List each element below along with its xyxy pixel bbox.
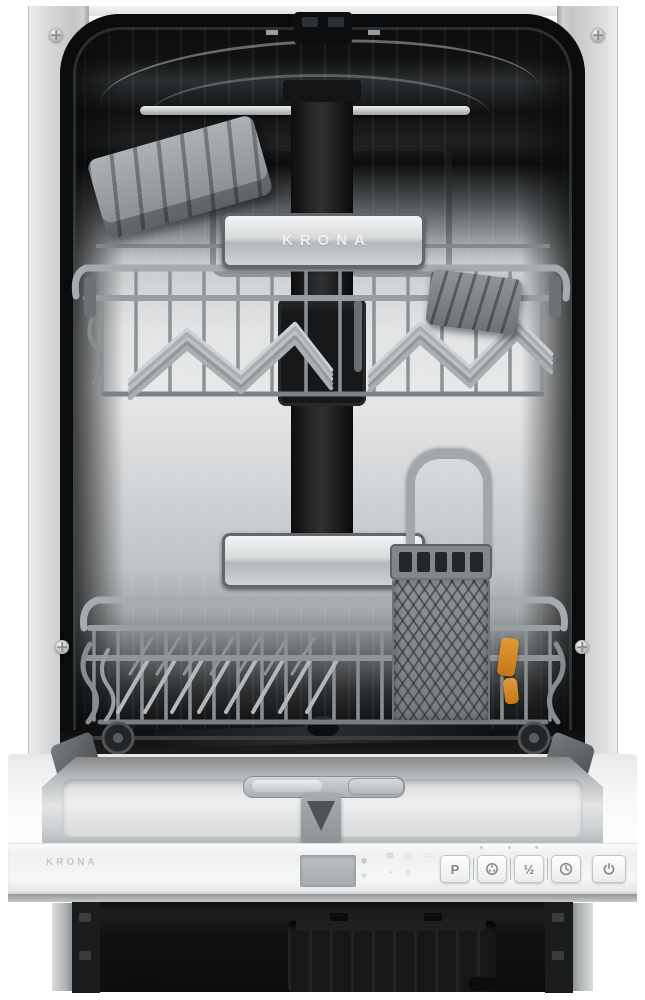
delay-start-button[interactable] bbox=[551, 855, 581, 883]
bracket-notch bbox=[552, 913, 564, 922]
program-button[interactable]: P bbox=[440, 855, 470, 883]
dispenser-latch bbox=[348, 778, 404, 795]
program-led bbox=[535, 846, 538, 849]
rinse-refill-icon: ✳ bbox=[358, 871, 370, 882]
control-panel: KRONA ✱ ✳ ⊠ ▭ ∷ ◔ ▿ P bbox=[8, 843, 637, 894]
salt-funnel bbox=[301, 793, 341, 845]
brand-logo: KRONA bbox=[275, 232, 372, 249]
button-divider bbox=[547, 858, 548, 880]
button-divider bbox=[473, 858, 474, 880]
program-led bbox=[480, 846, 483, 849]
base-tab bbox=[330, 913, 348, 921]
cutlery-basket-top-grid bbox=[390, 544, 492, 580]
base-roller bbox=[125, 975, 165, 991]
water-supply-indicator-icon: ▿ bbox=[400, 868, 416, 877]
base-tab bbox=[424, 913, 442, 921]
extra-function-icon bbox=[484, 861, 500, 877]
upper-basket-foldable-tines-left bbox=[130, 324, 331, 398]
salt-indicator-icon: ⊠ bbox=[382, 851, 398, 860]
cutlery-slot bbox=[399, 552, 412, 572]
extra-function-button[interactable] bbox=[477, 855, 507, 883]
lower-basket bbox=[83, 600, 564, 738]
folded-cup-shelf bbox=[425, 269, 523, 336]
program-led bbox=[508, 846, 511, 849]
height-adjust-clip[interactable] bbox=[503, 677, 520, 704]
clock-icon bbox=[558, 861, 574, 877]
power-button[interactable] bbox=[592, 855, 626, 883]
base-roller bbox=[468, 977, 516, 991]
upper-basket-foldable-tines-right bbox=[370, 320, 551, 390]
base-drip-tray-lip bbox=[296, 919, 486, 931]
mounting-bracket bbox=[72, 899, 100, 993]
cutlery-slot bbox=[470, 552, 483, 572]
program-phase-indicator-icon: ∷ bbox=[420, 851, 436, 860]
power-icon bbox=[601, 861, 617, 877]
cutlery-basket bbox=[392, 578, 490, 722]
base-drip-tray bbox=[288, 921, 496, 992]
bracket-notch bbox=[552, 951, 564, 960]
salt-refill-icon: ✱ bbox=[358, 856, 370, 867]
mounting-bracket-metal bbox=[52, 903, 72, 991]
cutlery-slot bbox=[435, 552, 448, 572]
dispenser-lid-plate bbox=[252, 780, 322, 792]
door-shadow bbox=[8, 893, 637, 902]
screw-icon bbox=[591, 28, 605, 42]
dishwasher-photo: KRONA KRONA ✱ ✳ ⊠ ▭ ∷ ◔ ▿ bbox=[0, 0, 645, 1000]
mounting-bracket bbox=[545, 899, 573, 993]
button-divider bbox=[510, 858, 511, 880]
brand-logo: KRONA bbox=[46, 857, 98, 868]
cutlery-slot bbox=[417, 552, 430, 572]
rinse-aid-indicator-icon: ▭ bbox=[400, 851, 416, 860]
bracket-notch bbox=[79, 913, 91, 922]
mounting-bracket-metal bbox=[573, 903, 593, 991]
half-load-button[interactable]: ½ bbox=[514, 855, 544, 883]
indicator-cluster: ⊠ ▭ ∷ ◔ ▿ bbox=[382, 851, 442, 885]
button-row: P ½ bbox=[440, 855, 626, 883]
program-display bbox=[300, 855, 356, 887]
upper-basket-handle[interactable]: KRONA bbox=[222, 213, 425, 268]
cutlery-slot bbox=[452, 552, 465, 572]
delay-time-indicator-icon: ◔ bbox=[382, 868, 398, 877]
bracket-notch bbox=[79, 951, 91, 960]
